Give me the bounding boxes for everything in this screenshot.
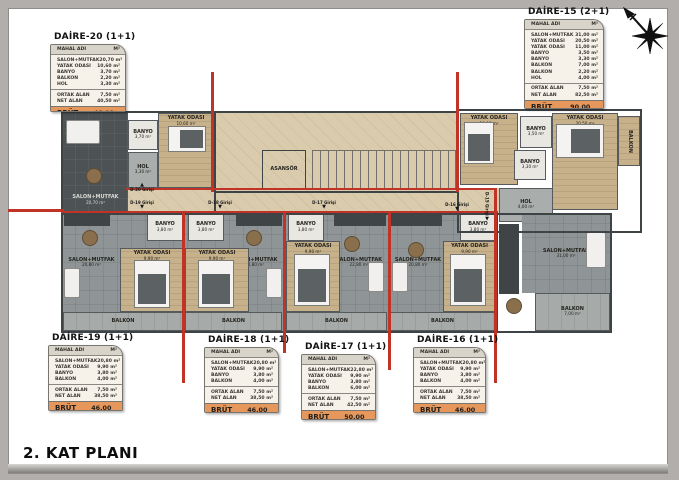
sheet-bottom-shadow bbox=[8, 464, 668, 473]
room-banyo2-d15: BANYO3,30 m² bbox=[514, 150, 546, 180]
entrance-label-d20: ▲D-20 Girişi bbox=[122, 183, 162, 192]
room-balkon-d18: BALKON bbox=[185, 312, 282, 331]
apartment-table: MAHAL ADIM² SALON+MUTFAK22,80 m²YATAK OD… bbox=[301, 354, 376, 420]
total-row: NET ALAN40,50 m² bbox=[57, 99, 120, 104]
room-banyo-d17: BANYO3,80 m² bbox=[288, 214, 324, 241]
sofa-icon bbox=[66, 120, 100, 144]
apartment-table: MAHAL ADIM² SALON+MUTFAK20,80 m²YATAK OD… bbox=[204, 347, 279, 413]
apartment-table: MAHAL ADIM² SALON+MUTFAK20,80 m²YATAK OD… bbox=[413, 347, 486, 413]
gross-area-row: BRÜT ALAN48,00 m² bbox=[51, 106, 125, 112]
red-wall-party-1 bbox=[182, 213, 185, 383]
total-row: NET ALAN42,50 m² bbox=[308, 403, 370, 408]
gross-area-row: BRÜT ALAN90,00 m² bbox=[525, 100, 603, 110]
sofa-icon bbox=[392, 262, 408, 292]
red-wall-corridor-bottom bbox=[61, 211, 498, 213]
room-row: BALKON6,00 m² bbox=[308, 386, 370, 391]
room-row: SALON+MUTFAK20,80 m² bbox=[420, 361, 480, 366]
room-row: YATAK ODASI9,90 m² bbox=[308, 374, 370, 379]
bed-icon bbox=[198, 260, 234, 308]
room-balkon-top-d15: BALKON bbox=[618, 116, 640, 166]
apartment-title: DAİRE-17 (1+1) bbox=[305, 342, 376, 352]
table-header: MAHAL ADIM² bbox=[205, 348, 278, 358]
room-row: YATAK ODASI20,50 m² bbox=[531, 39, 598, 44]
room-row: BANYO3,80 m² bbox=[420, 373, 480, 378]
apartment-table: MAHAL ADIM² SALON+MUTFAK20,80 m²YATAK OD… bbox=[48, 345, 123, 411]
red-wall-top-2 bbox=[456, 72, 459, 192]
arrow-down-icon: ▼ bbox=[218, 205, 222, 210]
room-row: YATAK ODASI10,60 m² bbox=[57, 64, 120, 69]
room-row: SALON+MUTFAK20,80 m² bbox=[211, 361, 273, 366]
total-row: NET ALAN38,50 m² bbox=[420, 396, 480, 401]
room-rows: SALON+MUTFAK20,80 m²YATAK ODASI9,90 m²BA… bbox=[414, 358, 485, 386]
arrow-down-icon: ▼ bbox=[322, 205, 326, 210]
total-row: ORTAK ALAN7,50 m² bbox=[55, 388, 117, 393]
room-row: SALON+MUTFAK20,80 m² bbox=[55, 359, 117, 364]
total-row: ORTAK ALAN7,50 m² bbox=[531, 86, 598, 91]
room-row: YATAK ODASI9,90 m² bbox=[211, 367, 273, 372]
sofa-icon bbox=[368, 262, 384, 292]
table-header: MAHAL ADIM² bbox=[414, 348, 485, 358]
apartment-table: MAHAL ADIM² SALON+MUTFAK31,00 m²YATAK OD… bbox=[524, 19, 604, 109]
bed-icon bbox=[464, 122, 494, 164]
room-banyo-d16: BANYO3,80 m² bbox=[460, 214, 496, 241]
room-banyo-d18: BANYO3,80 m² bbox=[188, 214, 224, 241]
red-axis-left bbox=[8, 209, 64, 212]
table-header: MAHAL ADIM² bbox=[51, 45, 125, 55]
dining-table-icon bbox=[82, 230, 98, 246]
north-arrow-compass-icon bbox=[620, 6, 672, 62]
room-balkon-d15: BALKON7,00 m² bbox=[535, 293, 610, 331]
apartment-table: MAHAL ADIM² SALON+MUTFAK20,70 m²YATAK OD… bbox=[50, 44, 126, 112]
arrow-down-icon: ▼ bbox=[455, 207, 459, 212]
entrance-label-d17: D-17 Girişi▼ bbox=[304, 201, 344, 210]
dining-table-icon bbox=[246, 230, 262, 246]
total-rows: ORTAK ALAN7,50 m²NET ALAN40,50 m² bbox=[51, 89, 125, 106]
dining-table-icon bbox=[344, 236, 360, 252]
room-row: SALON+MUTFAK31,00 m² bbox=[531, 33, 598, 38]
room-row: BALKON7,00 m² bbox=[531, 63, 598, 68]
red-wall-party-4 bbox=[494, 190, 497, 383]
total-rows: ORTAK ALAN7,50 m²NET ALAN82,50 m² bbox=[525, 83, 603, 100]
red-wall-top-1 bbox=[211, 72, 214, 192]
room-balkon-d16: BALKON bbox=[389, 312, 496, 331]
room-row: HOL3,30 m² bbox=[57, 82, 120, 87]
sofa-icon bbox=[64, 268, 80, 298]
red-wall-corridor-top bbox=[126, 188, 497, 190]
total-row: NET ALAN38,50 m² bbox=[55, 394, 117, 399]
entrance-label-d18: D-18 Girişi▼ bbox=[200, 201, 240, 210]
apartment-card-daire-16: DAİRE-16 (1+1) MAHAL ADIM² SALON+MUTFAK2… bbox=[413, 335, 486, 413]
room-banyo-d19: BANYO3,80 m² bbox=[147, 214, 183, 241]
gross-area-row: BRÜT ALAN46,00 m² bbox=[49, 401, 122, 411]
staircase bbox=[312, 150, 456, 190]
kitchen-counter-d15 bbox=[499, 224, 519, 294]
room-row: BALKON4,00 m² bbox=[211, 379, 273, 384]
room-row: BANYO3,30 m² bbox=[531, 57, 598, 62]
room-row: BALKON4,00 m² bbox=[420, 379, 480, 384]
dining-table-icon bbox=[86, 168, 102, 184]
bed-icon bbox=[450, 254, 486, 306]
room-row: BALKON4,00 m² bbox=[55, 377, 117, 382]
room-rows: SALON+MUTFAK20,80 m²YATAK ODASI9,90 m²BA… bbox=[205, 358, 278, 386]
apartment-card-daire-20: DAİRE-20 (1+1) MAHAL ADIM² SALON+MUTFAK2… bbox=[50, 32, 126, 112]
table-header: MAHAL ADIM² bbox=[302, 355, 375, 365]
room-rows: SALON+MUTFAK20,80 m²YATAK ODASI9,90 m²BA… bbox=[49, 356, 122, 384]
total-row: ORTAK ALAN7,50 m² bbox=[57, 93, 120, 98]
room-rows: SALON+MUTFAK22,80 m²YATAK ODASI9,90 m²BA… bbox=[302, 365, 375, 393]
apartment-title: DAİRE-16 (1+1) bbox=[417, 335, 486, 345]
dining-table-icon bbox=[408, 242, 424, 258]
table-header: MAHAL ADIM² bbox=[525, 20, 603, 30]
total-row: ORTAK ALAN7,50 m² bbox=[420, 390, 480, 395]
room-rows: SALON+MUTFAK20,70 m²YATAK ODASI10,60 m²B… bbox=[51, 55, 125, 89]
room-row: YATAK ODASI9,90 m² bbox=[55, 365, 117, 370]
gross-area-row: BRÜT ALAN50,00 m² bbox=[302, 410, 375, 420]
table-header: MAHAL ADIM² bbox=[49, 346, 122, 356]
room-row: YATAK ODASI11,00 m² bbox=[531, 45, 598, 50]
room-row: BALKON2,20 m² bbox=[531, 70, 598, 75]
entrance-label-d16: D-16 Girişi▼ bbox=[437, 203, 477, 212]
entrance-label-d19: D-19 Girişi▼ bbox=[122, 201, 162, 210]
room-row: BALKON2,20 m² bbox=[57, 76, 120, 81]
room-elevator: ASANSÖR bbox=[262, 150, 306, 190]
room-balkon-d19: BALKON bbox=[63, 312, 183, 331]
arrow-down-icon: ▼ bbox=[140, 205, 144, 210]
gross-area-row: BRÜT ALAN46,00 m² bbox=[205, 403, 278, 413]
room-row: HOL4,00 m² bbox=[531, 76, 598, 81]
arrow-right-icon: ▼ bbox=[484, 216, 489, 222]
room-row: BANYO3,50 m² bbox=[531, 51, 598, 56]
room-banyo-d20: BANYO3,70 m² bbox=[128, 120, 158, 150]
dining-table-icon bbox=[506, 298, 522, 314]
bed-icon bbox=[134, 260, 170, 308]
sofa-icon bbox=[266, 268, 282, 298]
room-row: BANYO3,80 m² bbox=[55, 371, 117, 376]
apartment-card-daire-18: DAİRE-18 (1+1) MAHAL ADIM² SALON+MUTFAK2… bbox=[204, 335, 279, 413]
room-row: YATAK ODASI9,90 m² bbox=[420, 367, 480, 372]
room-row: BANYO3,80 m² bbox=[308, 380, 370, 385]
room-row: SALON+MUTFAK20,70 m² bbox=[57, 58, 120, 63]
apartment-title: DAİRE-19 (1+1) bbox=[52, 333, 123, 343]
apartment-title: DAİRE-18 (1+1) bbox=[208, 335, 279, 345]
total-rows: ORTAK ALAN7,50 m²NET ALAN38,50 m² bbox=[414, 386, 485, 403]
apartment-card-daire-19: DAİRE-19 (1+1) MAHAL ADIM² SALON+MUTFAK2… bbox=[48, 333, 123, 411]
page-title: 2. KAT PLANI bbox=[23, 444, 138, 462]
apartment-title: DAİRE-15 (2+1) bbox=[528, 7, 604, 17]
red-wall-party-3 bbox=[388, 213, 391, 370]
total-rows: ORTAK ALAN7,50 m²NET ALAN42,50 m² bbox=[302, 393, 375, 410]
room-balkon-d17: BALKON bbox=[286, 312, 387, 331]
red-wall-party-2 bbox=[283, 213, 286, 353]
total-rows: ORTAK ALAN7,50 m²NET ALAN38,50 m² bbox=[205, 386, 278, 403]
apartment-title: DAİRE-20 (1+1) bbox=[54, 32, 126, 42]
gross-area-row: BRÜT ALAN46,00 m² bbox=[414, 403, 485, 413]
bed-icon bbox=[168, 126, 206, 152]
room-row: BANYO3,70 m² bbox=[57, 70, 120, 75]
bed-icon bbox=[294, 254, 330, 306]
total-row: NET ALAN38,50 m² bbox=[211, 396, 273, 401]
total-row: ORTAK ALAN7,50 m² bbox=[308, 397, 370, 402]
room-banyo1-d15: BANYO3,50 m² bbox=[520, 116, 552, 148]
sofa-icon bbox=[586, 232, 606, 268]
apartment-card-daire-17: DAİRE-17 (1+1) MAHAL ADIM² SALON+MUTFAK2… bbox=[301, 342, 376, 420]
room-rows: SALON+MUTFAK31,00 m²YATAK ODASI20,50 m²Y… bbox=[525, 30, 603, 83]
total-rows: ORTAK ALAN7,50 m²NET ALAN38,50 m² bbox=[49, 384, 122, 401]
bed-icon bbox=[556, 124, 604, 158]
apartment-card-daire-15: DAİRE-15 (2+1) MAHAL ADIM² SALON+MUTFAK3… bbox=[524, 7, 604, 109]
entrance-label-d15: D-15 Girişi▼ bbox=[484, 192, 489, 230]
total-row: NET ALAN82,50 m² bbox=[531, 93, 598, 98]
room-row: SALON+MUTFAK22,80 m² bbox=[308, 368, 370, 373]
room-row: BANYO3,80 m² bbox=[211, 373, 273, 378]
floor-plan-stage: SALON+MUTFAK20,70 m² BANYO3,70 m² HOL3,3… bbox=[0, 0, 679, 480]
total-row: ORTAK ALAN7,50 m² bbox=[211, 390, 273, 395]
